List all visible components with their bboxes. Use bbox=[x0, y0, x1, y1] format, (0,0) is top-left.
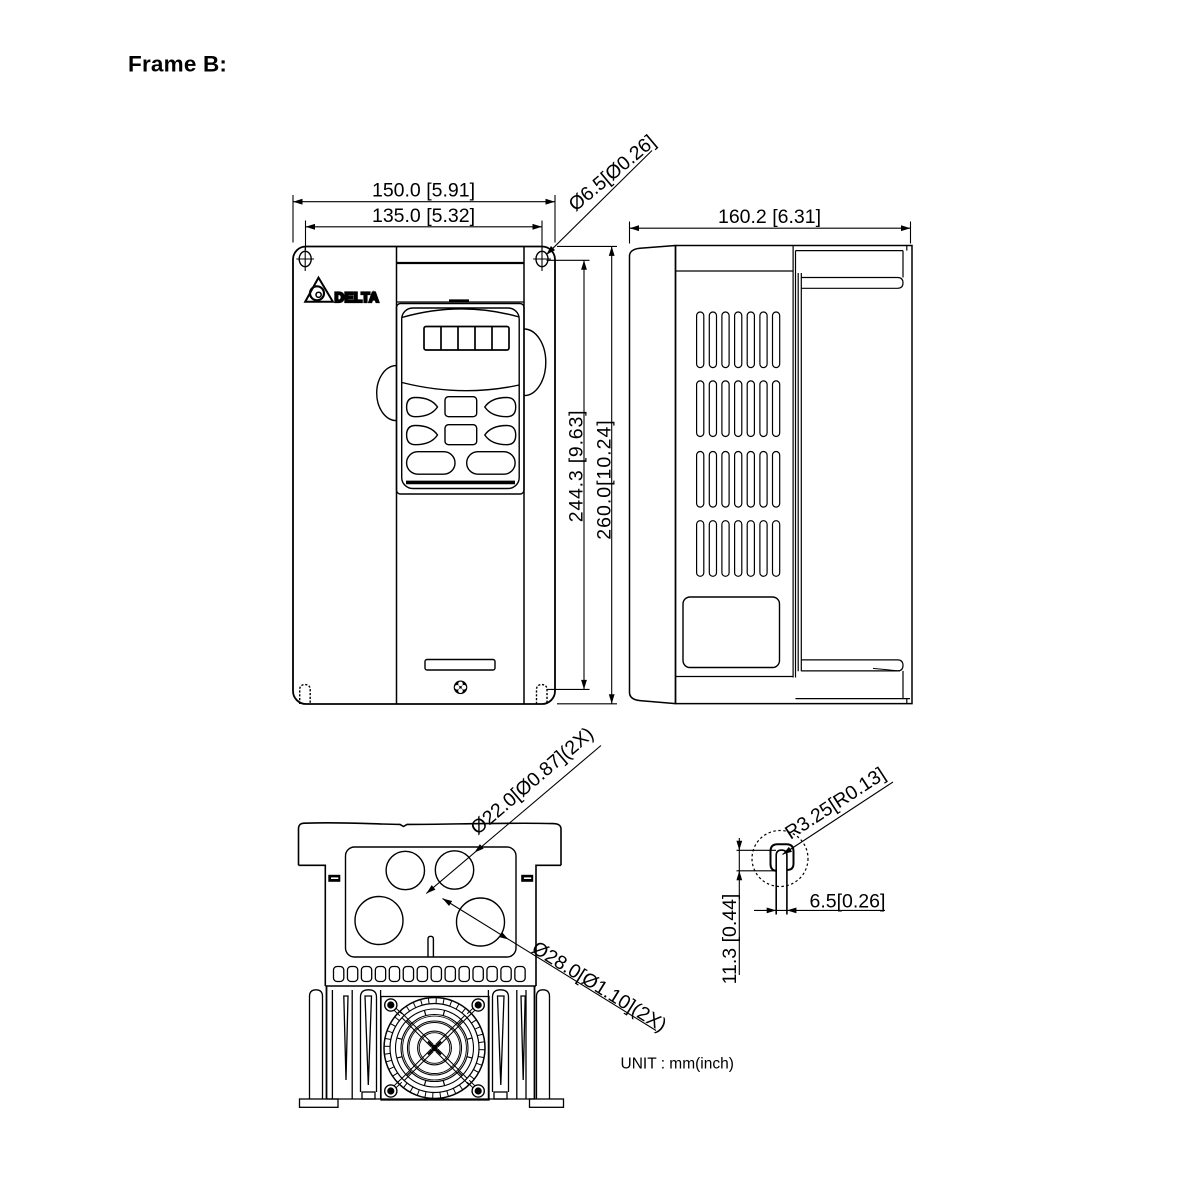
svg-text:260.0[10.24]: 260.0[10.24] bbox=[594, 419, 616, 539]
svg-text:160.2 [6.31]: 160.2 [6.31] bbox=[718, 206, 821, 228]
svg-text:6.5[0.26]: 6.5[0.26] bbox=[810, 891, 886, 913]
svg-text:DELTA: DELTA bbox=[335, 290, 380, 305]
svg-text:244.3 [9.63]: 244.3 [9.63] bbox=[566, 410, 588, 523]
svg-text:Frame B:: Frame B: bbox=[128, 52, 227, 77]
svg-text:UNIT : mm(inch): UNIT : mm(inch) bbox=[621, 1056, 734, 1073]
svg-text:150.0 [5.91]: 150.0 [5.91] bbox=[372, 180, 475, 202]
svg-text:11.3 [0.44]: 11.3 [0.44] bbox=[719, 894, 741, 985]
svg-text:135.0 [5.32]: 135.0 [5.32] bbox=[372, 205, 475, 227]
